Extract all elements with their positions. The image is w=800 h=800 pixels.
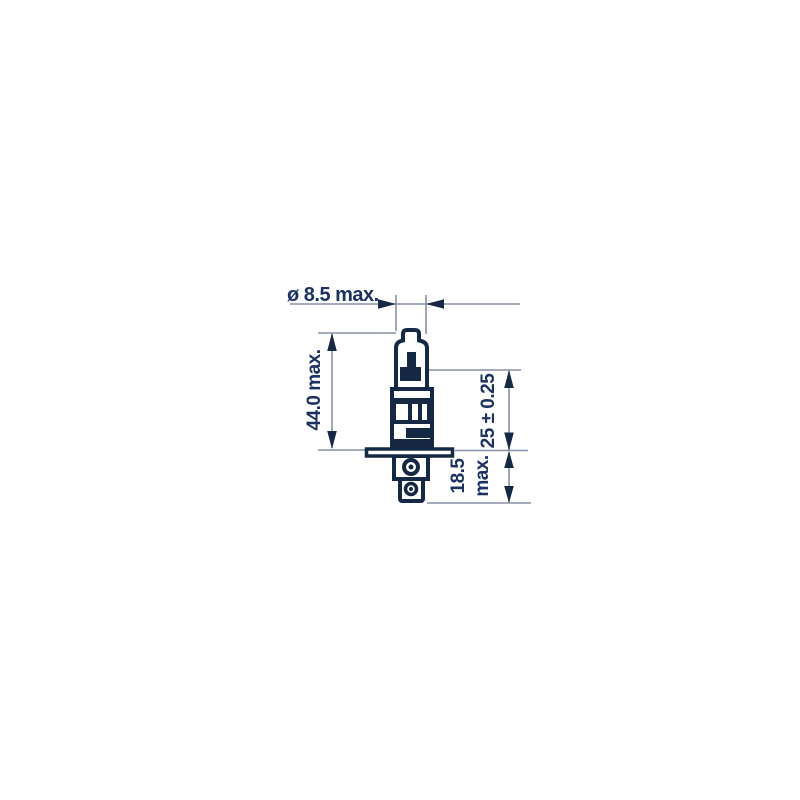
technical-drawing: ø 8.5 max. 44.0 max.	[0, 0, 800, 800]
overall-length-label: 44.0 max.	[304, 349, 325, 430]
base-hole-center	[409, 465, 414, 470]
contact-lug	[400, 479, 423, 501]
dimension-overall-length: 44.0 max.	[304, 333, 396, 450]
base-body-inner-tab	[406, 428, 430, 438]
dimension-diameter: ø 8.5 max.	[287, 284, 520, 334]
bulb-drawing	[367, 330, 453, 501]
contact-base	[394, 456, 428, 479]
arrowhead-up-icon	[504, 451, 514, 468]
flange	[367, 449, 453, 456]
arrowhead-down-icon	[327, 431, 337, 449]
arrowhead-up-icon	[504, 370, 514, 388]
base-length-label-value: 18.5	[448, 458, 469, 494]
light-center-length-label: 25 ± 0.25	[478, 373, 499, 449]
arrowhead-right-icon	[378, 299, 396, 309]
dimension-light-center-length: 25 ± 0.25	[429, 370, 528, 451]
base-window	[396, 404, 408, 420]
base-length-label-max: max.	[472, 455, 493, 496]
base-window	[412, 404, 418, 420]
arrowhead-left-icon	[426, 299, 444, 309]
base-collar	[392, 389, 432, 400]
arrowhead-down-icon	[504, 486, 514, 503]
base-window	[422, 404, 427, 420]
diameter-label: ø 8.5 max.	[287, 284, 379, 306]
lug-hole-center	[409, 487, 413, 491]
dimension-base-length: 18.5 max.	[427, 451, 531, 503]
base-body	[390, 400, 434, 448]
bulb-dimension-diagram: ø 8.5 max. 44.0 max.	[0, 0, 800, 800]
arrowhead-down-icon	[504, 433, 514, 451]
arrowhead-up-icon	[327, 333, 337, 351]
